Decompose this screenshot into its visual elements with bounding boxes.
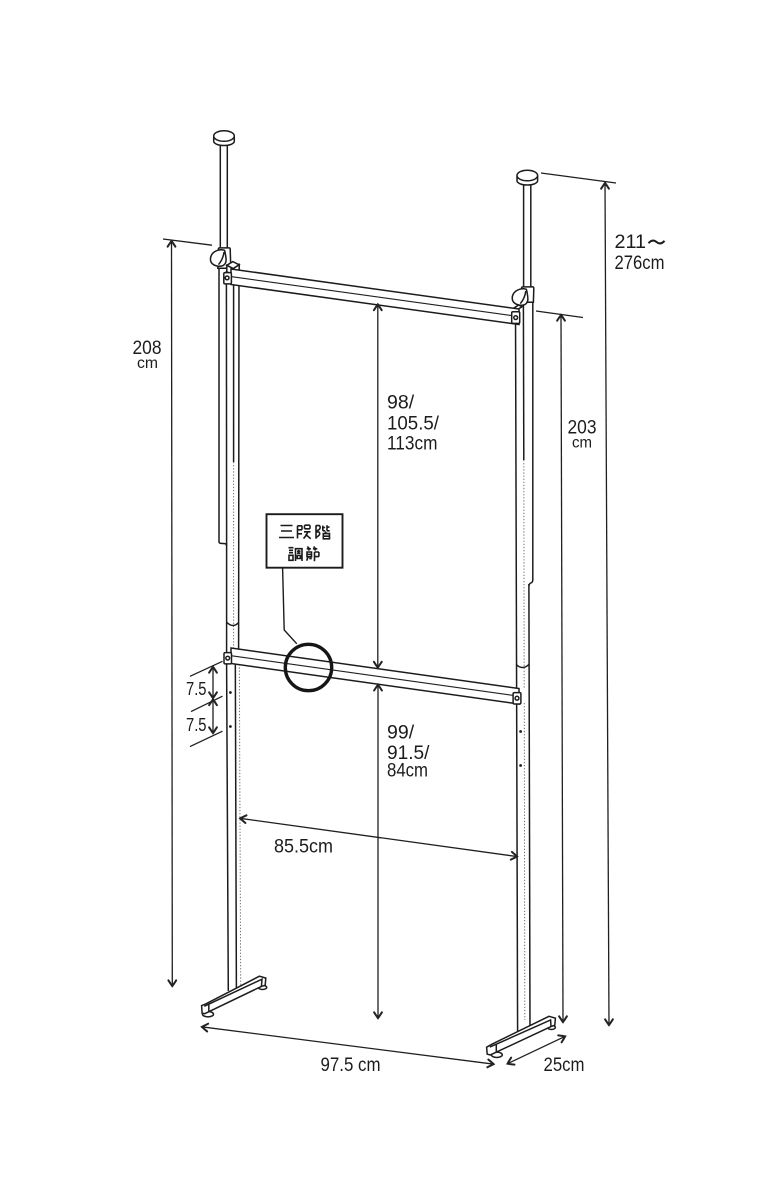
svg-text:85.5cm: 85.5cm (274, 836, 333, 858)
svg-text:cm: cm (572, 435, 592, 452)
svg-text:7.5: 7.5 (186, 678, 207, 699)
svg-text:113cm: 113cm (387, 433, 438, 455)
svg-text:276cm: 276cm (615, 252, 665, 274)
svg-text:98/: 98/ (387, 392, 415, 414)
svg-text:99/: 99/ (387, 722, 415, 744)
svg-text:7.5: 7.5 (186, 714, 207, 735)
svg-text:cm: cm (137, 355, 158, 372)
svg-text:105.5/: 105.5/ (387, 413, 440, 435)
svg-text:25cm: 25cm (544, 1054, 585, 1076)
svg-text:97.5 cm: 97.5 cm (321, 1054, 381, 1076)
svg-text:211: 211 (615, 231, 647, 253)
svg-text:84cm: 84cm (387, 760, 428, 782)
